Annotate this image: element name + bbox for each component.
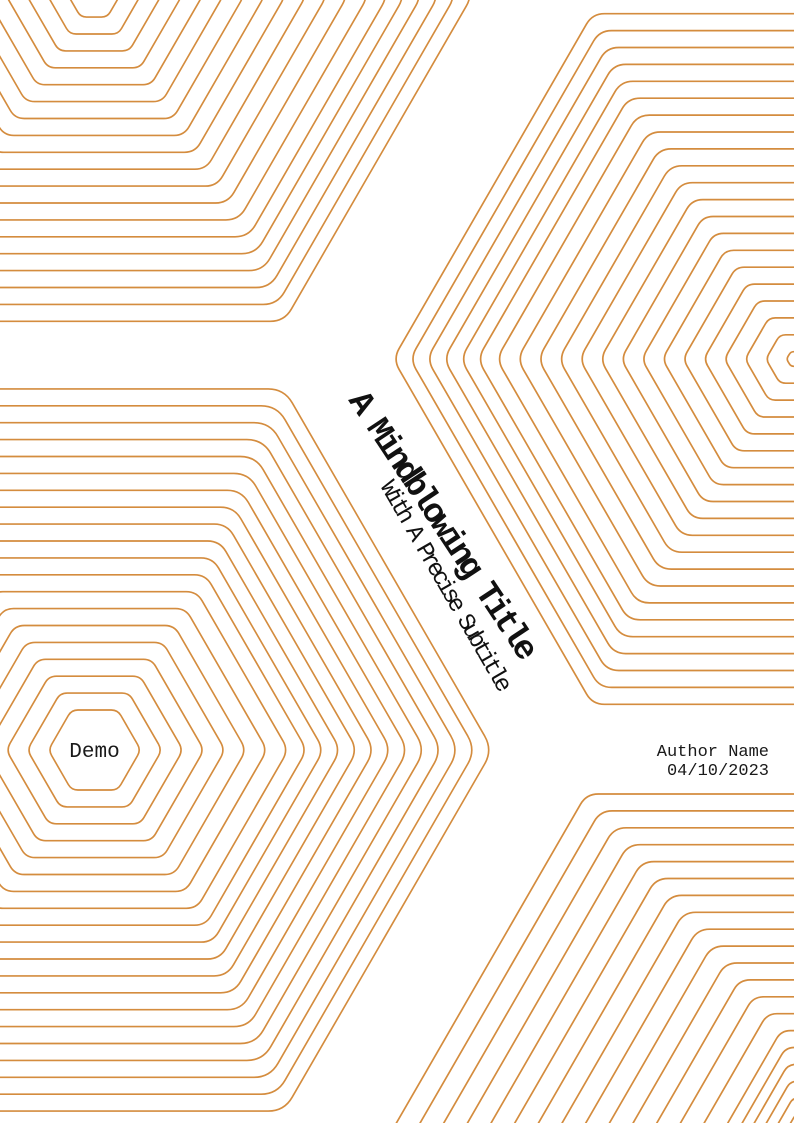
svg-text:Author Name: Author Name — [657, 743, 769, 762]
svg-text:04/10/2023: 04/10/2023 — [667, 762, 769, 781]
svg-text:Demo: Demo — [69, 741, 119, 764]
